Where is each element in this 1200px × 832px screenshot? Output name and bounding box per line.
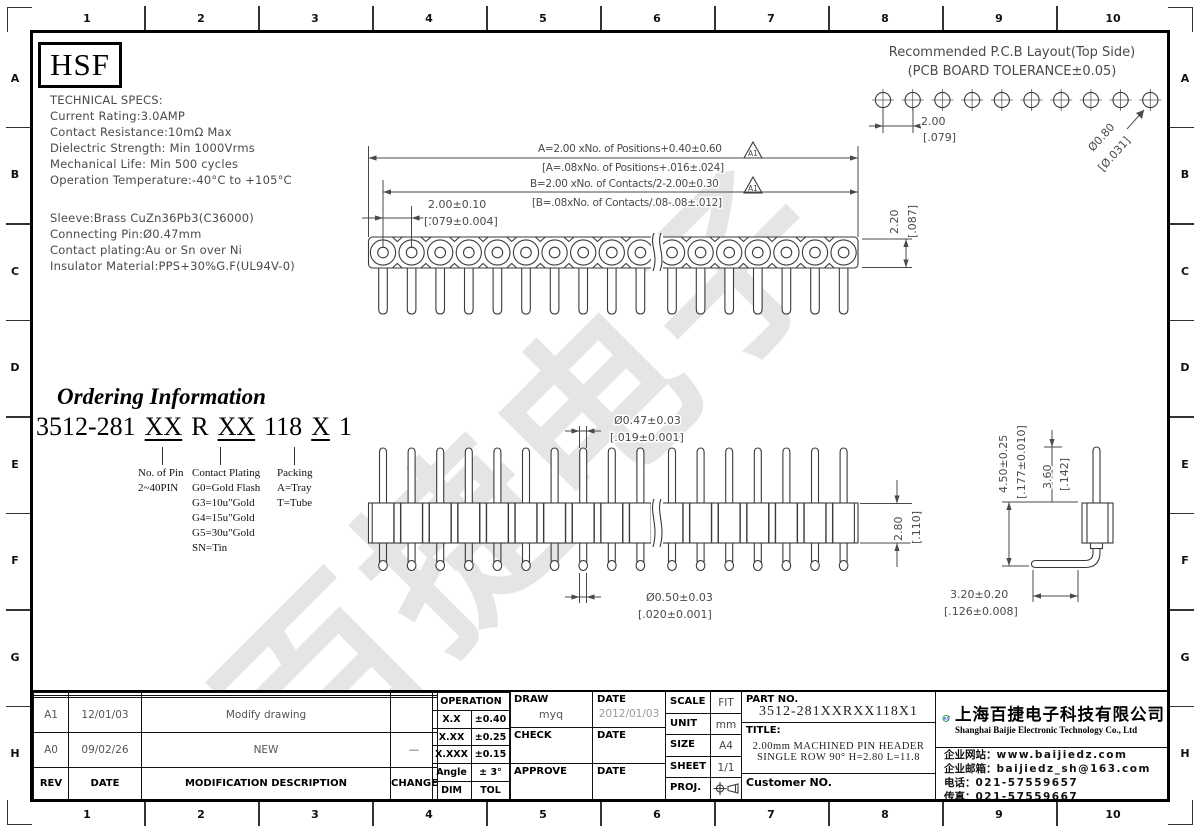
engineering-drawing-sheet: 百捷电子 A1 A1 Recommended P.C.B Layout(Top … (0, 0, 1200, 832)
dim-body-h-mm: 2.20 (888, 210, 901, 235)
grid-row-label: C (3, 223, 27, 320)
tolerance-cell: ±0.15 (471, 746, 510, 764)
ordering-legend-line: 2~40PIN (138, 481, 184, 496)
tolerance-header: OPERATION (432, 693, 510, 711)
grid-tick (714, 802, 716, 826)
spec-line: Mechanical Life: Min 500 cycles (50, 156, 292, 172)
grid-tick (258, 6, 260, 30)
company-logo: BJ (942, 698, 950, 738)
grid-column-label: 2 (144, 8, 258, 28)
contact-label: 电话： (944, 777, 976, 789)
ordering-legend-plating: Contact PlatingG0=Gold FlashG3=10u"GoldG… (192, 466, 260, 556)
draw-date-value: 2012/01/03 (593, 708, 665, 720)
dim-total-h-mm: 4.50±0.25 (997, 435, 1010, 493)
dim-leg-mm: 3.20±0.20 (950, 588, 1008, 601)
unit-label: UNIT (670, 718, 697, 729)
ordering-leader-line (220, 447, 221, 465)
contact-value: www.baijiedz.com (997, 749, 1128, 761)
ordering-legend-line: Contact Plating (192, 466, 260, 481)
dim-total-h-in: [.177±0.010] (1015, 425, 1028, 499)
pcb-layout-title: Recommended P.C.B Layout(Top Side) (889, 45, 1135, 60)
grid-tick (372, 6, 374, 30)
tolerance-cell: TOL (471, 782, 510, 800)
ordering-leader-line (294, 447, 295, 465)
dim-insulator-h-in: [.110] (910, 511, 923, 544)
tolerance-cell: DIM (432, 782, 471, 800)
contact-value: 021-57559657 (976, 777, 1079, 789)
grid-column-label: 10 (1056, 804, 1170, 824)
grid-column-label: 4 (372, 8, 486, 28)
revision-cell: 12/01/03 (69, 698, 142, 733)
dim-pitch-in: [.079±0.004] (424, 215, 498, 228)
ordering-legend-line: Packing (277, 466, 312, 481)
tolerance-cell: Angle (432, 764, 471, 782)
draw-label: DRAW (514, 694, 548, 705)
tolerance-cell: ±0.40 (471, 710, 510, 728)
pcb-layout-subtitle: (PCB BOARD TOLERANCE±0.05) (908, 64, 1117, 79)
pcb-pitch-in: [.079] (923, 131, 956, 144)
ordering-code-variable: XX (145, 412, 183, 441)
date-label: DATE (597, 730, 626, 741)
grid-tick (6, 127, 30, 129)
grid-tick (600, 802, 602, 826)
part-title-line1: 2.00mm MACHINED PIN HEADER (742, 741, 935, 752)
grid-tick (1170, 223, 1194, 225)
grid-column-label: 9 (942, 8, 1056, 28)
grid-row-label: A (3, 30, 27, 127)
dim-leg-in: [.126±0.008] (944, 605, 1018, 618)
dim-b-formula-mm: B=2.00 xNo. of Contacts/2-2.00±0.30 (530, 178, 719, 190)
ordering-legend-pins: No. of Pin2~40PIN (138, 466, 184, 496)
ordering-title: Ordering Information (57, 384, 266, 410)
grid-tick (6, 513, 30, 515)
ordering-legend-line: G3=10u"Gold (192, 496, 260, 511)
tolerance-cell: X.X (432, 710, 471, 728)
spec-line: Operation Temperature:-40°C to +105°C (50, 172, 292, 188)
tolerance-cell: X.XX (432, 728, 471, 746)
dim-pin-bot-in: [.020±0.001] (638, 608, 712, 621)
grid-tick (6, 416, 30, 418)
scale-value: FIT (711, 697, 741, 709)
tolerance-table: OPERATIONX.X±0.40X.XX±0.25X.XXX±0.15Angl… (432, 692, 511, 800)
contact-label: 企业邮箱： (944, 763, 997, 775)
dim-a-formula-mm: A=2.00 xNo. of Positions+0.40±0.60 (538, 143, 722, 155)
company-contact-line: 电话：021-57559657 (936, 776, 1167, 790)
spec-line: Contact Resistance:10mΩ Max (50, 124, 292, 140)
corner-mark (7, 800, 32, 825)
part-no-value: 3512-281XXRXX118X1 (742, 704, 935, 720)
tolerance-cell: ± 3° (471, 764, 510, 782)
grid-tick (828, 6, 830, 30)
grid-tick (1170, 706, 1194, 708)
ordering-legend-line: G0=Gold Flash (192, 481, 260, 496)
ordering-part-code: 3512-281XXRXX118X1 (36, 412, 361, 442)
grid-tick (714, 6, 716, 30)
revision-table: A112/01/03Modify drawingA009/02/26NEW—RE… (33, 692, 438, 800)
grid-tick (258, 802, 260, 826)
date-label: DATE (597, 694, 626, 705)
revision-header-cell: REV (34, 767, 69, 799)
ordering-legend-line: A=Tray (277, 481, 312, 496)
ordering-leader-line (162, 447, 163, 465)
dim-a-formula-in: [A=.08xNo. of Positions+.016±.024] (542, 162, 724, 174)
grid-row-label: B (1173, 127, 1197, 224)
revision-cell: — (391, 733, 438, 768)
grid-tick (1170, 513, 1194, 515)
dim-body-h-in: [.087] (906, 205, 919, 238)
grid-row-label: F (1173, 513, 1197, 610)
dim-tail-mm: 3.60 (1041, 465, 1054, 490)
ordering-legend-packing: PackingA=TrayT=Tube (277, 466, 312, 511)
grid-column-label: 6 (600, 8, 714, 28)
title-block: A112/01/03Modify drawingA009/02/26NEW—RE… (33, 690, 1167, 800)
ordering-code-variable: X (311, 412, 330, 441)
grid-column-label: 7 (714, 8, 828, 28)
grid-tick (372, 802, 374, 826)
dim-pin-bot-mm: Ø0.50±0.03 (646, 591, 713, 604)
grid-row-label: C (1173, 223, 1197, 320)
grid-tick (1170, 127, 1194, 129)
company-name-cn: 上海百捷电子科技有限公司 (955, 701, 1165, 725)
grid-column-label: 8 (828, 8, 942, 28)
grid-column-label: 5 (486, 804, 600, 824)
grid-row-label: E (1173, 416, 1197, 513)
scale-label: SCALE (670, 696, 705, 707)
revision-cell: A0 (34, 733, 69, 768)
title-label: TITLE: (746, 725, 781, 736)
company-contact-info: 企业网站：www.baijiedz.com企业邮箱：baijiedz_sh@16… (936, 748, 1167, 800)
ordering-code-fixed: R (191, 412, 208, 441)
revision-cell: A1 (34, 698, 69, 733)
grid-tick (6, 320, 30, 322)
grid-tick (486, 802, 488, 826)
tolerance-cell: X.XXX (432, 746, 471, 764)
ordering-legend-line: G4=15u"Gold (192, 511, 260, 526)
grid-row-label: D (1173, 320, 1197, 417)
dim-pin-top-in: [.019±0.001] (610, 431, 684, 444)
grid-tick (144, 6, 146, 30)
grid-column-label: 6 (600, 804, 714, 824)
spec-line: Insulator Material:PPS+30%G.F(UL94V-0) (50, 258, 295, 274)
company-contact-line: 企业网站：www.baijiedz.com (936, 748, 1167, 762)
technical-specs-block: TECHNICAL SPECS:Current Rating:3.0AMPCon… (50, 92, 292, 188)
grid-tick (1170, 416, 1194, 418)
revision-cell: Modify drawing (142, 698, 391, 733)
dim-b-formula-in: [B=.08xNo. of Contacts/.08-.08±.012] (532, 197, 722, 209)
grid-column-label: 7 (714, 804, 828, 824)
spec-line: Dielectric Strength: Min 1000Vrms (50, 140, 292, 156)
tolerance-cell: ±0.25 (471, 728, 510, 746)
grid-tick (486, 6, 488, 30)
customer-no-label: Customer NO. (746, 776, 832, 789)
grid-column-label: 1 (30, 804, 144, 824)
grid-tick (1170, 320, 1194, 322)
grid-column-label: 10 (1056, 8, 1170, 28)
grid-row-label: H (1173, 706, 1197, 803)
part-title-line2: SINGLE ROW 90° H=2.80 L=11.8 (742, 752, 935, 763)
ordering-code-fixed: 3512-281 (36, 412, 136, 441)
contact-value: baijiedz_sh@163.com (997, 763, 1151, 775)
grid-tick (1170, 609, 1194, 611)
spec-line: Current Rating:3.0AMP (50, 108, 292, 124)
check-label: CHECK (514, 730, 552, 741)
ordering-code-variable: XX (218, 412, 256, 441)
grid-tick (6, 223, 30, 225)
revision-flag-b: A1 (748, 184, 758, 193)
grid-column-label: 9 (942, 804, 1056, 824)
ordering-legend-line: No. of Pin (138, 466, 184, 481)
projection-symbol-icon (711, 779, 741, 798)
ordering-code-fixed: 1 (339, 412, 352, 441)
hsf-logo: HSF (38, 42, 122, 88)
grid-row-label: E (3, 416, 27, 513)
grid-tick (600, 6, 602, 30)
revision-header-cell: MODIFICATION DESCRIPTION (142, 767, 391, 799)
grid-tick (942, 6, 944, 30)
grid-row-label: H (3, 706, 27, 803)
dim-insulator-h-mm: 2.80 (892, 517, 905, 542)
grid-column-label: 2 (144, 804, 258, 824)
grid-tick (144, 802, 146, 826)
draw-value: myq (510, 708, 592, 721)
projection-label: PROJ. (670, 782, 701, 793)
grid-row-label: G (1173, 609, 1197, 706)
grid-column-label: 3 (258, 8, 372, 28)
grid-row-label: D (3, 320, 27, 417)
ordering-legend-line: T=Tube (277, 496, 312, 511)
grid-tick (6, 609, 30, 611)
spec-line: Contact plating:Au or Sn over Ni (50, 242, 295, 258)
contact-label: 企业网站： (944, 749, 997, 761)
revision-header-cell: CHANGE (391, 767, 438, 799)
size-label: SIZE (670, 739, 695, 750)
spec-line: Sleeve:Brass CuZn36Pb3(C36000) (50, 210, 295, 226)
spec-line: TECHNICAL SPECS: (50, 92, 292, 108)
grid-tick (1056, 6, 1058, 30)
grid-tick (828, 802, 830, 826)
grid-column-label: 8 (828, 804, 942, 824)
material-specs-block: Sleeve:Brass CuZn36Pb3(C36000)Connecting… (50, 210, 295, 274)
grid-column-label: 5 (486, 8, 600, 28)
connector-geometry (369, 89, 1162, 571)
company-name-en: Shanghai Baijie Electronic Technology Co… (955, 725, 1165, 735)
dim-pin-top-mm: Ø0.47±0.03 (614, 414, 681, 427)
grid-tick (942, 802, 944, 826)
spec-line: Connecting Pin:Ø0.47mm (50, 226, 295, 242)
grid-tick (6, 706, 30, 708)
revision-cell: NEW (142, 733, 391, 768)
grid-column-label: 1 (30, 8, 144, 28)
revision-flag-a: A1 (748, 149, 758, 158)
revision-cell: 09/02/26 (69, 733, 142, 768)
pcb-pitch-mm: 2.00 (921, 115, 946, 128)
size-value: A4 (711, 740, 741, 752)
revision-header-cell: DATE (69, 767, 142, 799)
company-logo-text: BJ (944, 717, 948, 721)
sheet-label: SHEET (670, 761, 706, 772)
grid-column-label: 4 (372, 804, 486, 824)
approve-label: APPROVE (514, 766, 567, 777)
ordering-legend-line: G5=30u"Gold (192, 526, 260, 541)
sheet-value: 1/1 (711, 762, 741, 774)
unit-value: mm (711, 719, 741, 731)
grid-row-label: A (1173, 30, 1197, 127)
ordering-code-fixed: 118 (264, 412, 302, 441)
grid-row-label: G (3, 609, 27, 706)
grid-row-label: B (3, 127, 27, 224)
dim-tail-in: [.142] (1058, 458, 1071, 491)
date-label: DATE (597, 766, 626, 777)
company-contact-line: 企业邮箱：baijiedz_sh@163.com (936, 762, 1167, 776)
corner-mark (7, 7, 32, 32)
ordering-legend-line: SN=Tin (192, 541, 260, 556)
grid-row-label: F (3, 513, 27, 610)
grid-tick (1056, 802, 1058, 826)
revision-cell (391, 698, 438, 733)
grid-column-label: 3 (258, 804, 372, 824)
corner-mark (1168, 7, 1193, 32)
dim-pitch-mm: 2.00±0.10 (428, 198, 486, 211)
corner-mark (1168, 800, 1193, 825)
